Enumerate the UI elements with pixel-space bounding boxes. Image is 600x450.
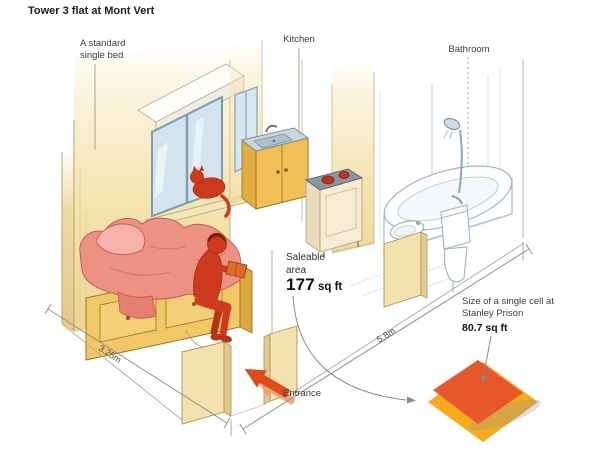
label-bathroom: Bathroom (448, 44, 490, 56)
flat-illustration (0, 0, 600, 450)
comparison-caption: Size of a single cell at Stanley Prison (462, 296, 570, 320)
label-kitchen: Kitchen (279, 34, 319, 46)
saleable-area-caption: Saleable area (286, 252, 340, 277)
page-title: Tower 3 flat at Mont Vert (28, 5, 154, 17)
label-entrance: Entrance (283, 388, 321, 400)
bathroom-partition-wall (384, 232, 427, 307)
saleable-area-value: 177 sq ft (286, 275, 342, 295)
comparison-value: 80.7 sq ft (462, 322, 508, 335)
label-standard-bed: A standard single bed (80, 38, 138, 62)
saleable-area-number: 177 (286, 275, 315, 295)
saleable-area-unit: sq ft (318, 281, 342, 293)
toilet (441, 205, 470, 292)
infographic-canvas: Tower 3 flat at Mont Vert A standard sin… (0, 0, 600, 450)
kitchen-sink-unit (242, 126, 308, 209)
